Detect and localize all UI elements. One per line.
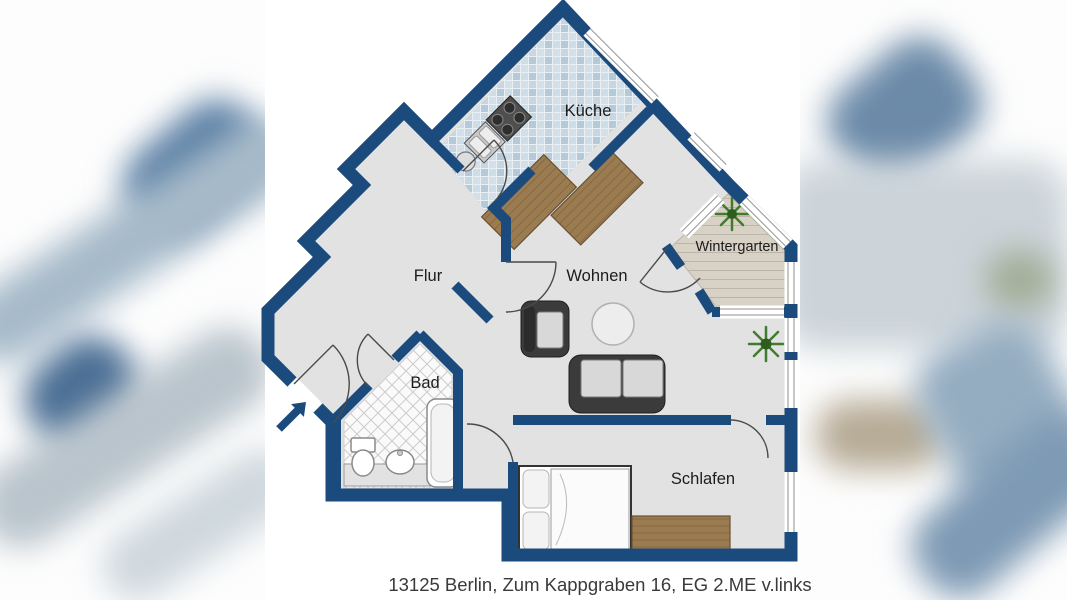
window (788, 472, 794, 532)
bed (519, 466, 631, 553)
pillow (523, 470, 549, 508)
room-label-flur: Flur (414, 267, 443, 285)
faucet (398, 451, 403, 456)
pillow (523, 512, 549, 550)
window (788, 360, 794, 408)
room-label-schlafen: Schlafen (671, 470, 735, 488)
caption: 13125 Berlin, Zum Kappgraben 16, EG 2.ME… (388, 574, 811, 595)
armchair-back (524, 306, 535, 352)
sofa-cushion (581, 360, 621, 397)
washbasin-icon (386, 450, 414, 474)
sofa (569, 355, 665, 413)
sofa-cushion (623, 360, 663, 397)
room-label-kueche: Küche (565, 102, 612, 120)
window (788, 262, 794, 304)
armchair (521, 301, 569, 357)
room-label-wohnen: Wohnen (566, 267, 627, 285)
floorplan-image: Küche Flur Wohnen Wintergarten Bad Schla… (0, 0, 1067, 600)
room-label-wintergarten: Wintergarten (695, 239, 778, 255)
toilet-icon (351, 438, 375, 476)
dresser (632, 516, 730, 552)
coffee-table (592, 303, 634, 345)
armchair-cushion (537, 312, 563, 348)
window (788, 318, 794, 352)
floorplan-svg: Küche Flur Wohnen Wintergarten Bad Schla… (0, 0, 1067, 600)
window (720, 309, 784, 315)
room-label-bad: Bad (410, 374, 439, 392)
plant-icon (749, 327, 783, 361)
